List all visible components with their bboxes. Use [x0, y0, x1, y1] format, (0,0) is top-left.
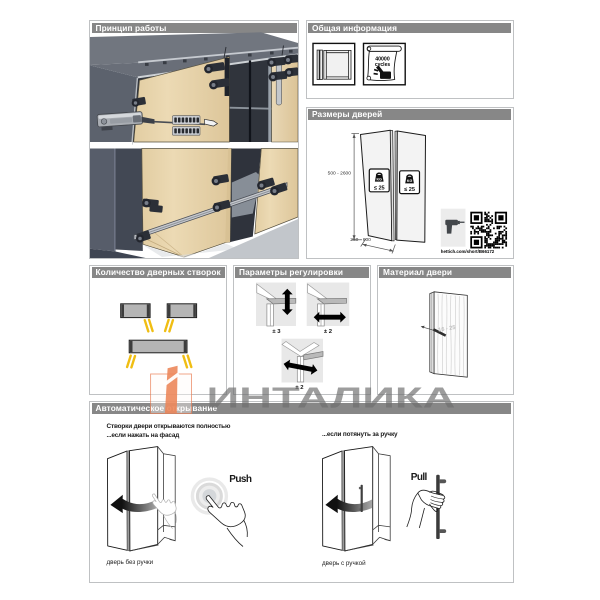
- svg-text:± 2: ± 2: [323, 329, 332, 335]
- svg-text:KG: KG: [406, 179, 412, 183]
- svg-text:≤ 25: ≤ 25: [404, 187, 415, 193]
- svg-text:500 - 2600: 500 - 2600: [327, 171, 351, 177]
- svg-text:± 3: ± 3: [272, 329, 281, 335]
- svg-text:250 - 600: 250 - 600: [350, 237, 371, 243]
- svg-text:KG: KG: [376, 177, 382, 181]
- svg-text:hettich.com/short/B66172: hettich.com/short/B66172: [440, 249, 494, 254]
- svg-text:≤ 25: ≤ 25: [373, 185, 384, 191]
- svg-text:ИНТАЛИКА: ИНТАЛИКА: [207, 383, 456, 415]
